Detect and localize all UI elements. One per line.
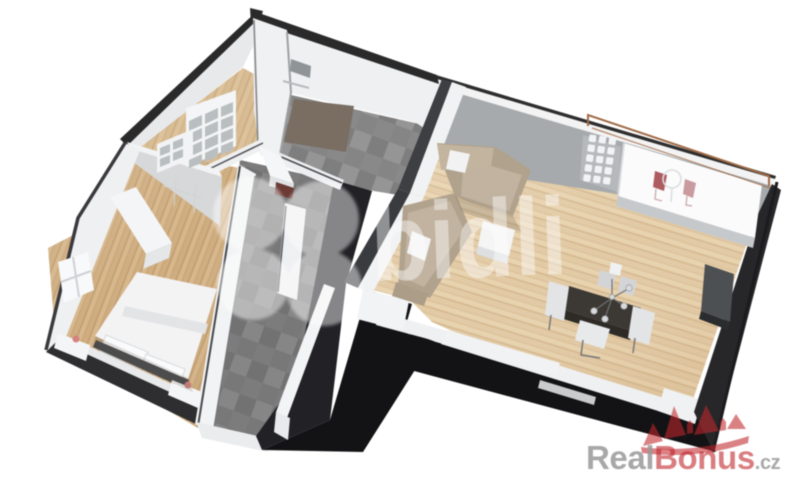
svg-text:bidli: bidli: [368, 174, 569, 304]
svg-text:RealBonus.cz: RealBonus.cz: [586, 439, 781, 476]
